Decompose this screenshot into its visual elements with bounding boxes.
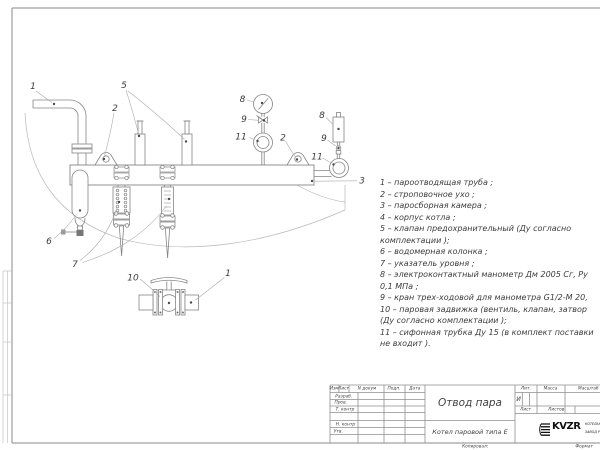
safety-valves	[135, 121, 192, 165]
callout-siphon-left: 11	[235, 133, 246, 143]
callout-gauge: 8	[240, 95, 246, 105]
callout-steam-pipe: 1	[30, 82, 36, 92]
legend-line: 6 – водомерная колонка ;	[380, 246, 600, 258]
tb-listov-label: Листов	[537, 406, 575, 414]
callout-cock-right: 9	[321, 134, 327, 144]
legend-line: комплектации );	[380, 235, 600, 247]
legend-line: 2 – строповочное ухо ;	[380, 189, 600, 201]
legend-line: не входит ).	[380, 338, 600, 350]
callout-cock-left: 9	[241, 115, 247, 125]
level-indicators	[113, 185, 175, 258]
tb-header-ndoc: N докум	[349, 385, 384, 393]
gate-valve	[139, 278, 199, 316]
tb-header-data: Дата	[405, 385, 425, 393]
callout-gate-valve: 10	[127, 274, 139, 284]
tb-masshtab-header: Масштаб	[565, 385, 600, 393]
kopiroval-label: Копировал:	[445, 443, 505, 450]
doc-title: Отвод пара	[425, 385, 515, 421]
tb-massa-header: Масса	[537, 385, 565, 393]
callout-chamber: 3	[359, 177, 365, 187]
callout-level-indicator: 7	[72, 260, 78, 270]
legend-line: 0,1 МПа ;	[380, 281, 600, 293]
org-name-line1: КОТЕЛЬН	[585, 422, 600, 426]
legend-line: 8 – электроконтактный манометр Дм 2005 С…	[380, 269, 600, 281]
legend-line: 5 – клапан предохранительный (Ду согласн…	[380, 223, 600, 235]
steam-outlet-pipe	[33, 100, 92, 165]
kvzr-logo-text: KVZR	[552, 421, 580, 432]
format-label: Формат	[568, 443, 600, 450]
legend-line: (Ду согласно комплектации );	[380, 315, 600, 327]
lifting-lugs	[95, 153, 309, 166]
water-gauge-column	[61, 170, 88, 236]
doc-subtitle: Котел паровой типа Е	[425, 421, 515, 444]
legend-line: 7 – указатель уровня ;	[380, 258, 600, 270]
tb-row-utv: Утв.	[330, 428, 360, 435]
kvzr-logo-icon	[540, 424, 550, 435]
legend-line: 11 – сифонная трубка Ду 15 (в комплект п…	[380, 327, 600, 339]
callout-safety-valves: 5	[121, 81, 127, 91]
part-marks	[53, 102, 340, 304]
legend-line: 4 – корпус котла ;	[380, 212, 600, 224]
callout-lug-right: 2	[280, 134, 286, 144]
callout-ecm: 8	[319, 111, 325, 121]
legend-line: 3 – паросборная камера ;	[380, 200, 600, 212]
tb-lit-header: Лит.	[515, 385, 537, 393]
electrocontact-manometer-assembly	[314, 113, 349, 178]
callout-pipe-bottom: 1	[225, 269, 231, 279]
callout-siphon-right: 11	[311, 153, 322, 163]
drawing-sheet: 1 2 5 8 9 11 2 8 9 11 3 6 7 10 1 1 – пар…	[0, 0, 600, 450]
tb-header-list: Лист	[339, 385, 349, 393]
callout-lug-left: 2	[112, 104, 118, 114]
tb-row-razrab: Разраб.	[330, 393, 360, 400]
callout-water-column: 6	[46, 237, 52, 247]
org-name: КОТЕЛЬН ЗАВОД Р	[585, 422, 600, 438]
parts-legend: 1 – пароотводящая труба ; 2 – строповочн…	[380, 177, 600, 350]
tb-header-podp: Подп.	[384, 385, 405, 393]
legend-line: 10 – паровая задвижка (вентиль, клапан, …	[380, 304, 600, 316]
tb-lit-value: И	[515, 393, 522, 407]
legend-line: 1 – пароотводящая труба ;	[380, 177, 600, 189]
tb-list-label: Лист	[515, 406, 537, 414]
pressure-gauge-assembly	[254, 95, 273, 166]
left-margin-stamps	[3, 271, 12, 443]
legend-line: 9 – кран трех-ходовой для манометра G1/2…	[380, 292, 600, 304]
steam-collecting-chamber	[70, 165, 314, 185]
org-name-line2: ЗАВОД Р	[585, 430, 600, 434]
tb-row-nkontr: Н. контр	[330, 421, 360, 428]
tb-row-tkontr: Т. контр	[330, 406, 360, 413]
